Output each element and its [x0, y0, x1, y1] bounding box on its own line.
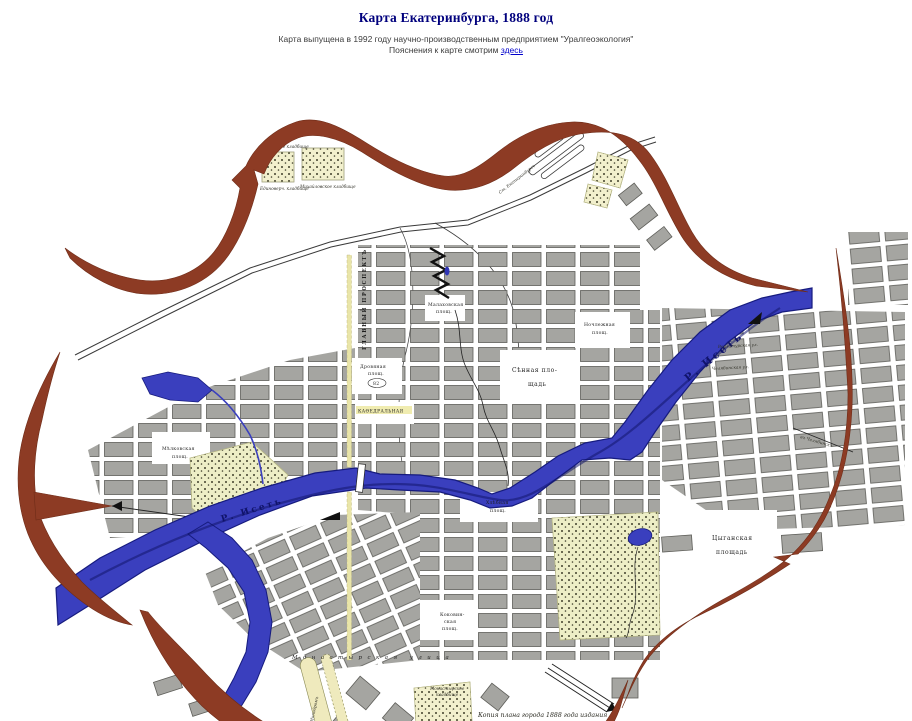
- svg-text:площ.: площ.: [436, 310, 452, 315]
- street-monastyrskaya: Монастырская улица: [291, 655, 454, 661]
- svg-text:щадь: щадь: [528, 381, 547, 388]
- square-kokovinskaya: Коковин-: [440, 612, 465, 618]
- svg-text:площ.: площ.: [368, 372, 384, 377]
- caption-line1: Копия плана города 1888 года издания: [477, 712, 607, 719]
- street-glavny-prospekt: ГЛАВНЫЙ ПРОСПЕКТЪ: [360, 248, 368, 350]
- svg-text:площ.: площ.: [490, 509, 506, 514]
- square-malakhovskaya: Малаховская: [428, 302, 463, 308]
- cemetery-mikhailovskoe-label: Михайловское кладбище: [299, 184, 356, 189]
- page-title: Карта Екатеринбурга, 1888 год: [0, 10, 912, 26]
- svg-text:ская: ская: [444, 620, 456, 625]
- city-map: Р. Исеть Р. Исеть ГЛАВНЫЙ ПРОСПЕКТЪ Мона…: [0, 60, 912, 721]
- square-tsyganskaya: Цыганская: [712, 535, 753, 542]
- svg-text:площ.: площ.: [172, 455, 188, 460]
- page-subtitle: Карта выпущена в 1992 году научно-произв…: [0, 34, 912, 55]
- cemetery-monastery-label: Монастырское: [429, 686, 465, 691]
- svg-text:площ.: площ.: [442, 627, 458, 632]
- svg-text:82: 82: [373, 381, 379, 387]
- subtitle-line2: Пояснения к карте смотрим: [389, 45, 501, 55]
- explanations-link[interactable]: здесь: [501, 45, 523, 55]
- square-sennaya: Сѣнная пло-: [512, 367, 558, 374]
- square-melkovskaya: Мѣлковская: [162, 445, 195, 452]
- square-drovyanaya: Дровяная: [360, 364, 386, 370]
- square-khlebnaya: Хлѣбная: [486, 499, 509, 506]
- svg-text:площ.: площ.: [592, 331, 608, 336]
- svg-text:кладбище: кладбище: [436, 692, 459, 697]
- square-nochlezhnaya: Ночлежная: [584, 322, 615, 328]
- kafedralnaya-square-label: КАѲЕДРАЛЬНАЯ: [358, 410, 404, 415]
- svg-text:площадь: площадь: [716, 549, 748, 556]
- page-header: Карта Екатеринбурга, 1888 год Карта выпу…: [0, 0, 912, 55]
- subtitle-line1: Карта выпущена в 1992 году научно-произв…: [279, 34, 634, 44]
